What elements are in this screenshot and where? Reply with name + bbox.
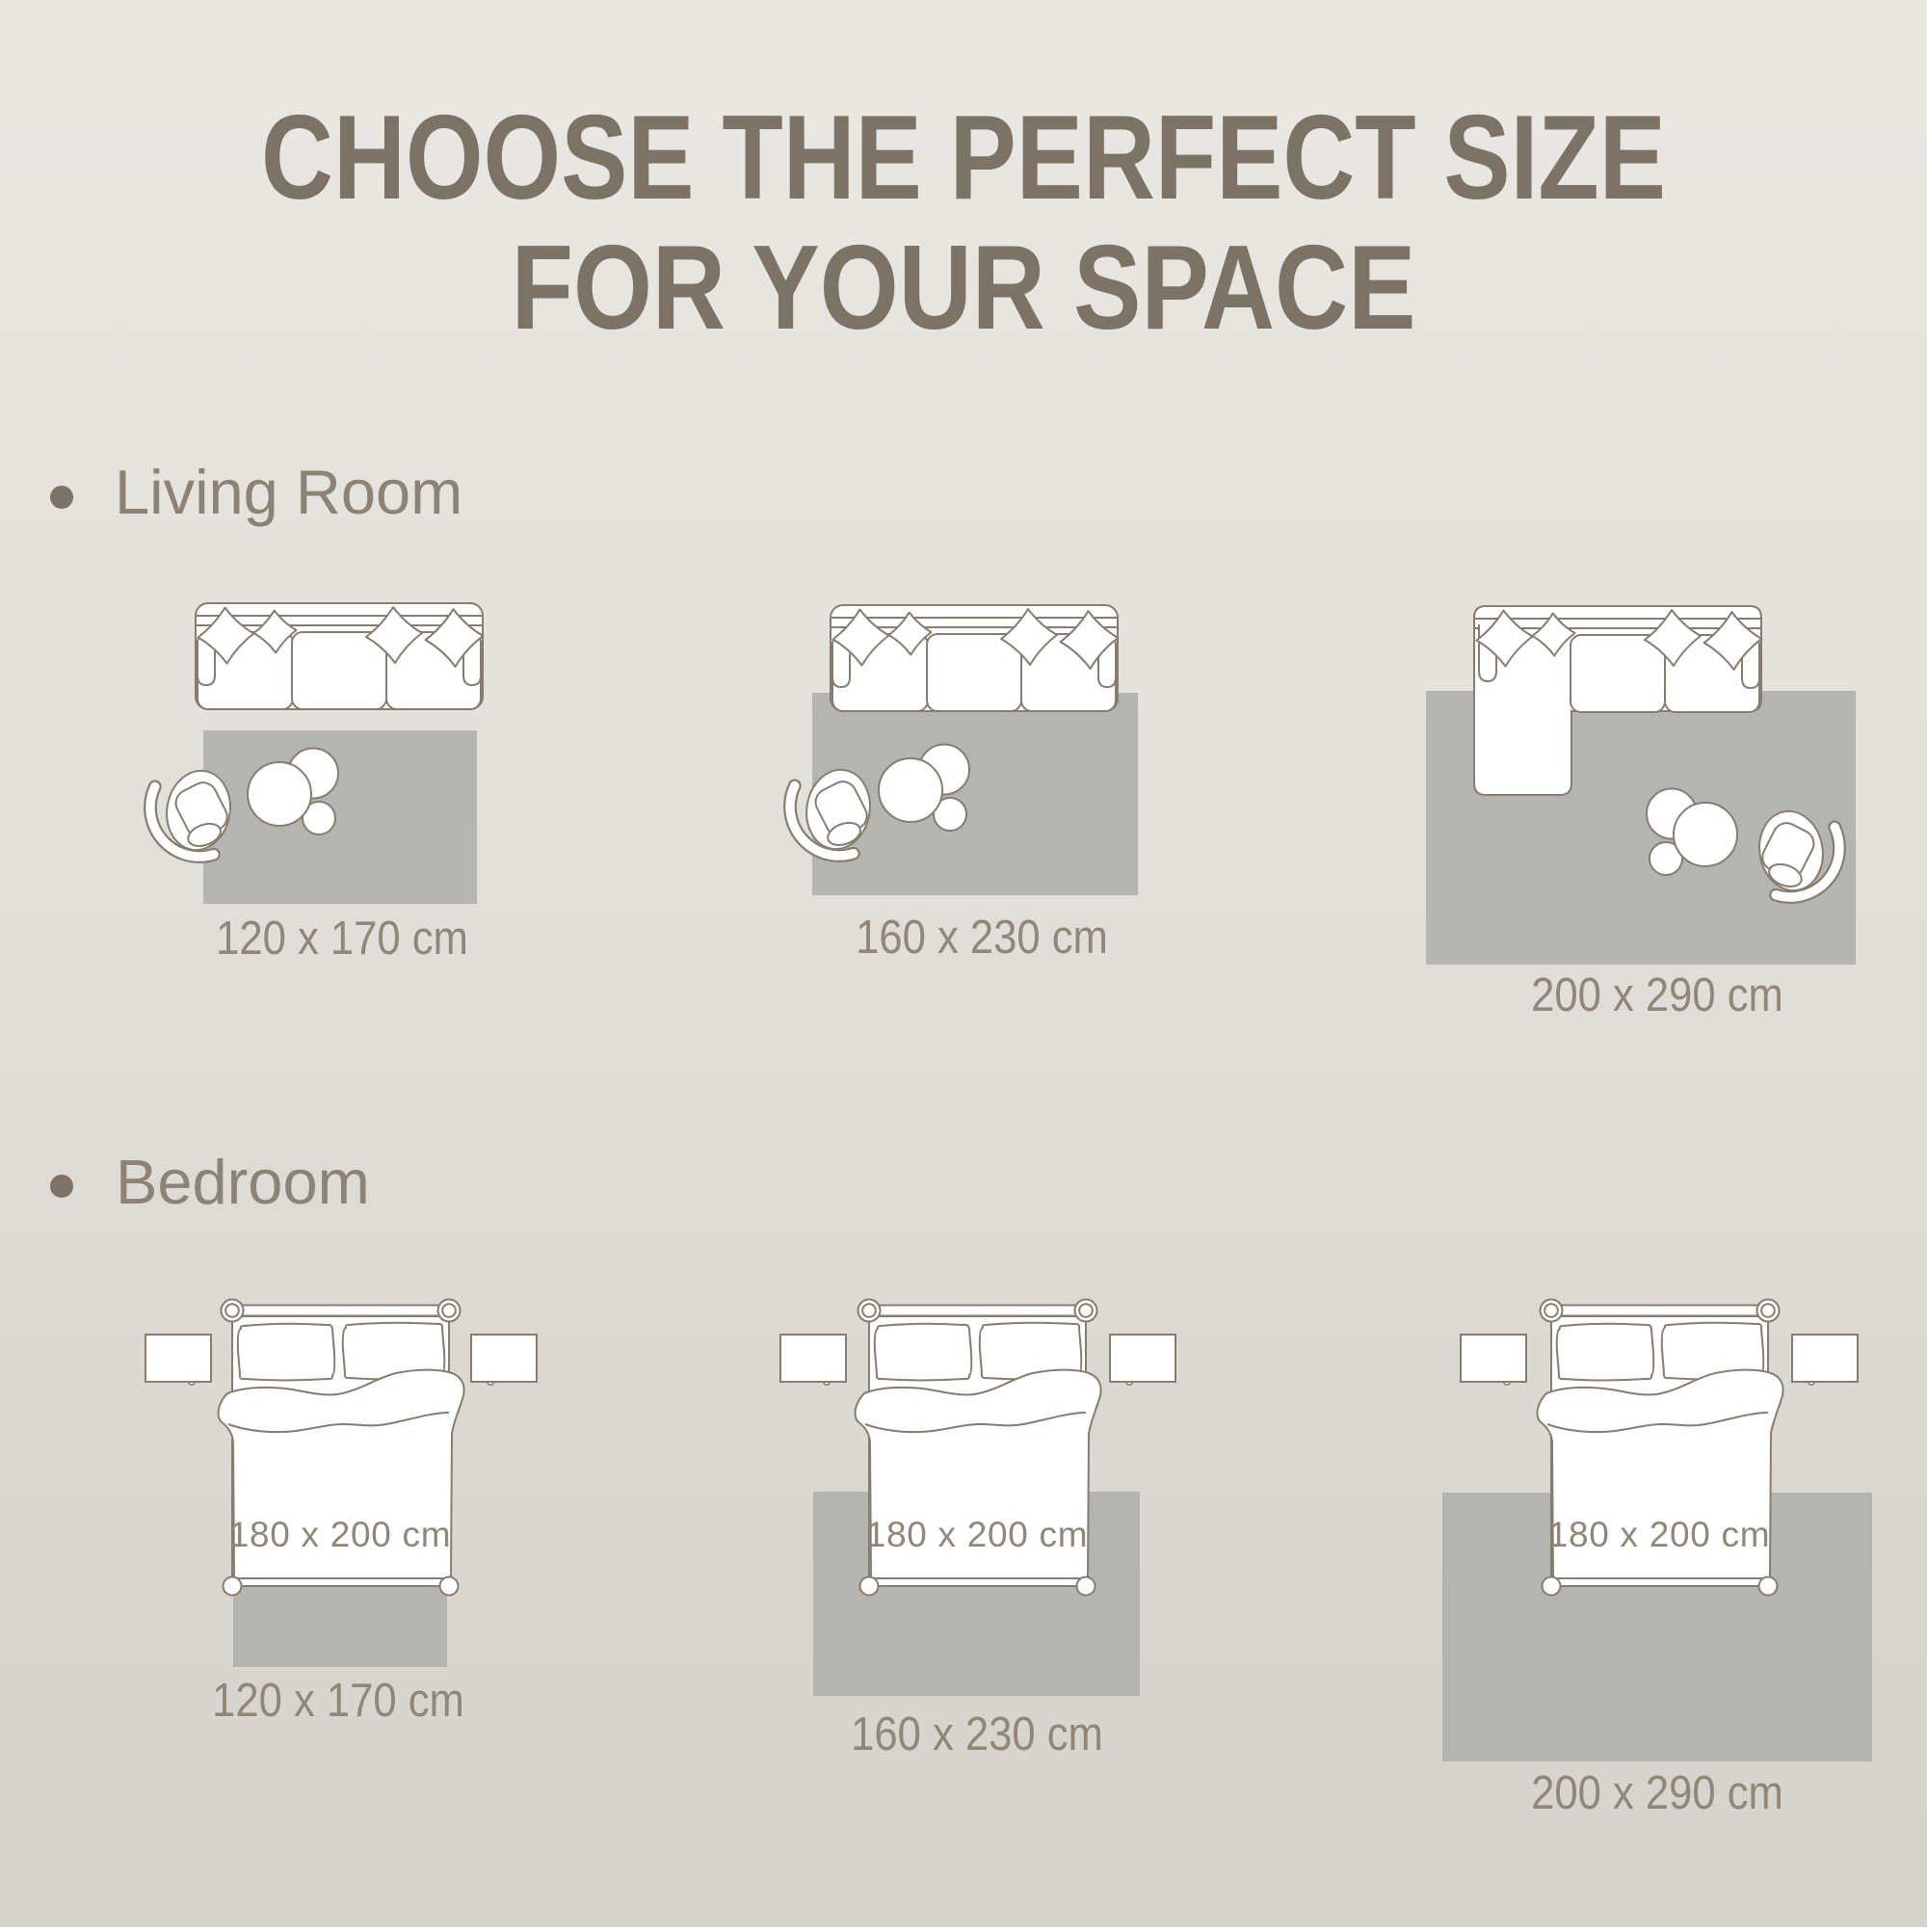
svg-text:160 x 230 cm: 160 x 230 cm <box>856 911 1108 964</box>
svg-text:160 x 230 cm: 160 x 230 cm <box>851 1707 1103 1760</box>
svg-text:180 x 200 cm: 180 x 200 cm <box>866 1515 1089 1554</box>
svg-text:120 x 170 cm: 120 x 170 cm <box>212 1674 464 1727</box>
svg-text:Living Room: Living Room <box>115 457 462 527</box>
svg-text:180 x 200 cm: 180 x 200 cm <box>229 1515 452 1554</box>
svg-text:180 x 200 cm: 180 x 200 cm <box>1548 1515 1771 1554</box>
svg-text:CHOOSE THE PERFECT SIZE: CHOOSE THE PERFECT SIZE <box>261 92 1666 225</box>
svg-text:200 x 290 cm: 200 x 290 cm <box>1531 968 1783 1021</box>
svg-text:FOR YOUR SPACE: FOR YOUR SPACE <box>512 222 1416 355</box>
svg-text:200 x 290 cm: 200 x 290 cm <box>1531 1766 1783 1819</box>
svg-text:Bedroom: Bedroom <box>116 1147 370 1217</box>
svg-text:120 x 170 cm: 120 x 170 cm <box>216 912 468 965</box>
